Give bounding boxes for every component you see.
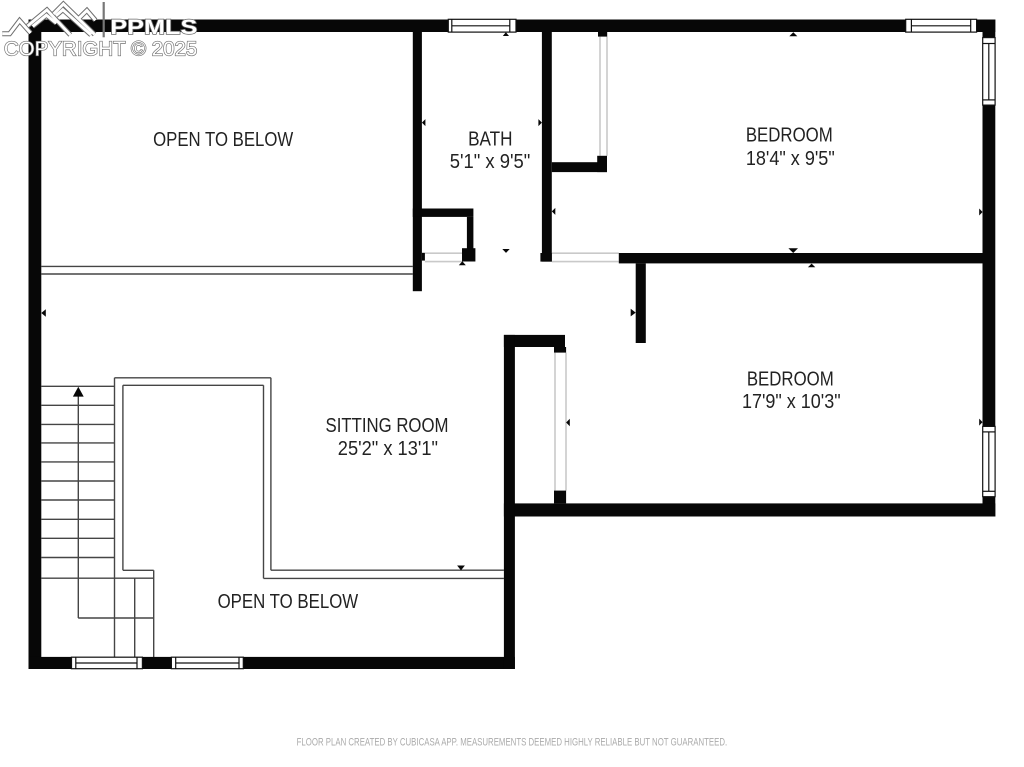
svg-text:SITTING ROOM: SITTING ROOM — [326, 414, 449, 437]
svg-text:OPEN TO BELOW: OPEN TO BELOW — [153, 128, 294, 151]
svg-text:18'4" x 9'5": 18'4" x 9'5" — [746, 147, 835, 170]
svg-text:17'9" x 10'3": 17'9" x 10'3" — [742, 390, 841, 413]
svg-text:OPEN TO BELOW: OPEN TO BELOW — [218, 590, 359, 613]
svg-text:5'1" x 9'5": 5'1" x 9'5" — [450, 150, 531, 173]
svg-text:25'2" x 13'1": 25'2" x 13'1" — [338, 437, 438, 460]
svg-text:FLOOR PLAN CREATED BY CUBICASA: FLOOR PLAN CREATED BY CUBICASA APP. MEAS… — [297, 736, 728, 748]
svg-text:BATH: BATH — [468, 127, 512, 150]
svg-text:PPMLS: PPMLS — [110, 15, 197, 39]
svg-text:BEDROOM: BEDROOM — [746, 123, 833, 146]
svg-text:COPYRIGHT © 2025: COPYRIGHT © 2025 — [4, 38, 197, 61]
svg-text:BEDROOM: BEDROOM — [747, 367, 834, 390]
